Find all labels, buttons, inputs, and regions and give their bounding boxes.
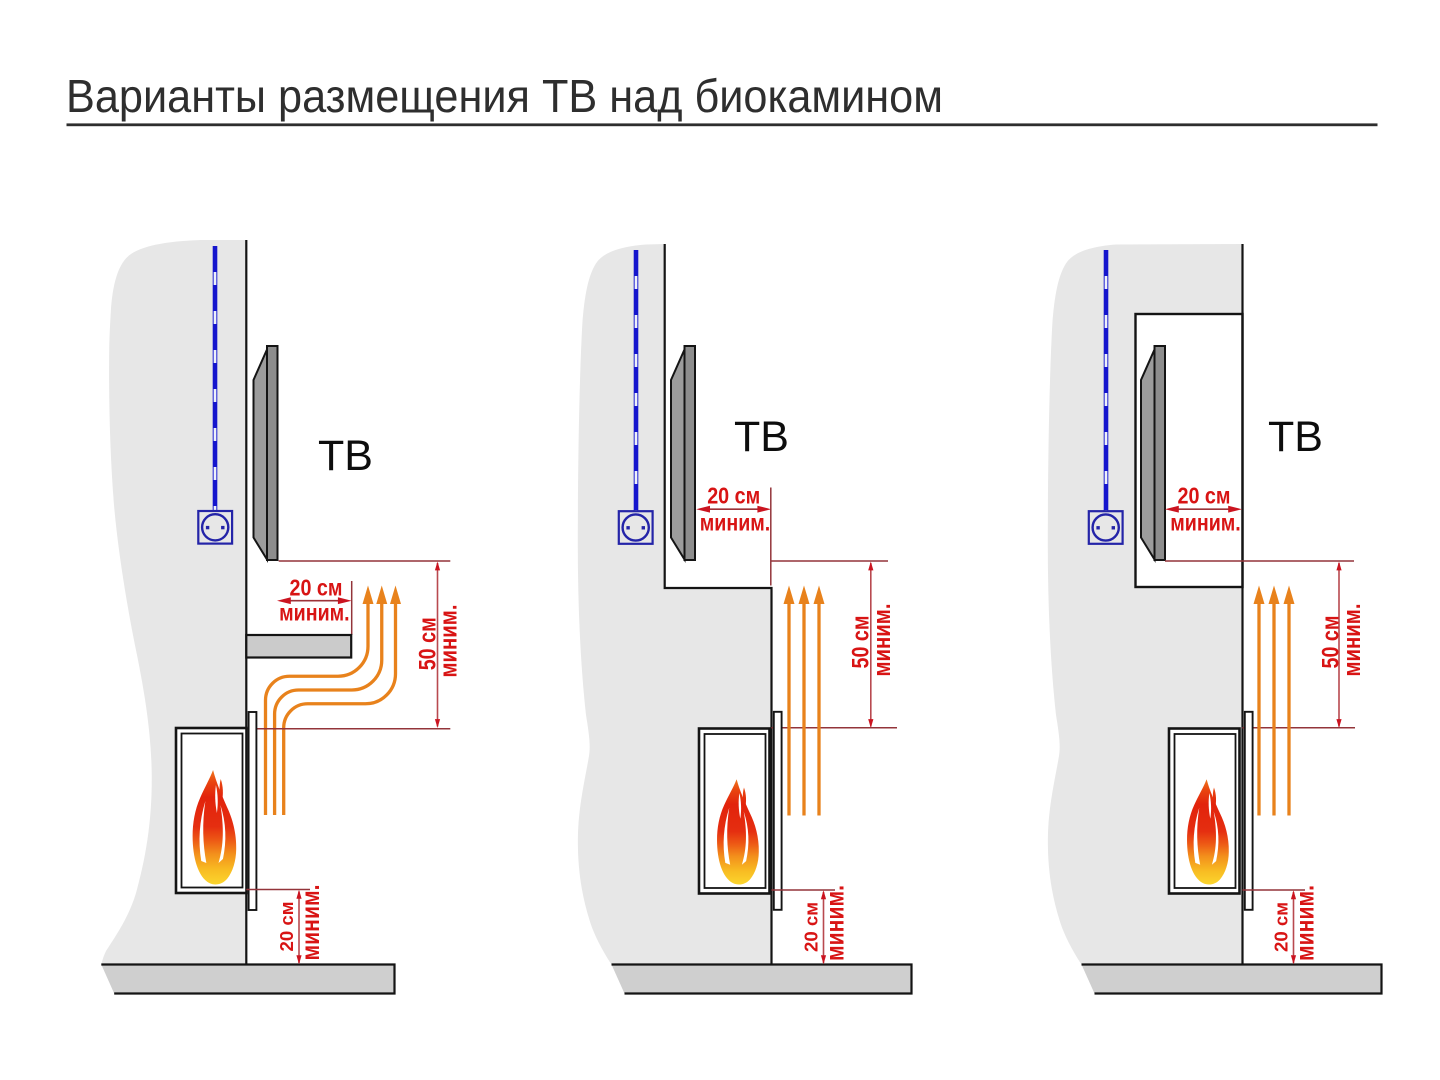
svg-text:миним.: миним. bbox=[436, 605, 463, 678]
svg-text:20 см: 20 см bbox=[800, 902, 821, 952]
svg-text:миним.: миним. bbox=[295, 885, 325, 961]
svg-text:20 см: 20 см bbox=[290, 575, 343, 601]
svg-text:20 см: 20 см bbox=[707, 482, 760, 508]
svg-text:миним.: миним. bbox=[279, 600, 350, 626]
svg-text:ТВ: ТВ bbox=[318, 432, 373, 480]
svg-text:миним.: миним. bbox=[700, 509, 771, 535]
svg-text:миним.: миним. bbox=[819, 885, 849, 961]
svg-text:миним.: миним. bbox=[1289, 885, 1319, 961]
svg-text:20 см: 20 см bbox=[1178, 482, 1231, 508]
svg-text:миним.: миним. bbox=[1170, 509, 1241, 535]
svg-text:20 см: 20 см bbox=[1270, 902, 1291, 952]
svg-text:ТВ: ТВ bbox=[1268, 413, 1323, 461]
svg-text:Варианты размещения ТВ над био: Варианты размещения ТВ над биокамином bbox=[66, 70, 943, 122]
svg-text:ТВ: ТВ bbox=[734, 413, 789, 461]
svg-text:миним.: миним. bbox=[869, 604, 896, 677]
svg-text:миним.: миним. bbox=[1339, 604, 1366, 677]
